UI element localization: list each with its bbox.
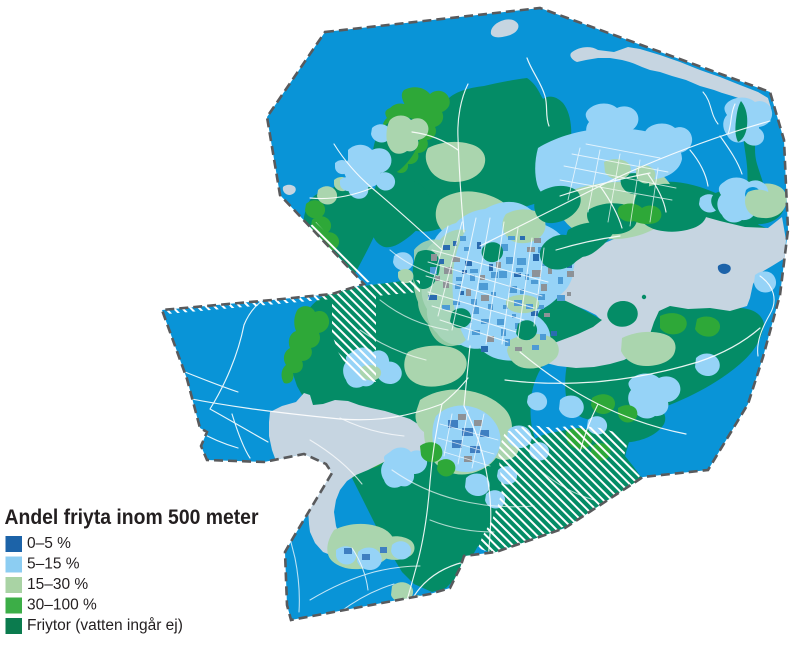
svg-text:30–100 %: 30–100 % [27, 597, 97, 614]
svg-text:Andel friyta inom 500 meter: Andel friyta inom 500 meter [5, 505, 260, 529]
svg-text:5–15 %: 5–15 % [27, 556, 80, 573]
svg-text:15–30 %: 15–30 % [27, 576, 88, 593]
svg-text:0–5 %: 0–5 % [27, 535, 71, 552]
svg-text:Friytor (vatten ingår ej): Friytor (vatten ingår ej) [27, 617, 183, 634]
